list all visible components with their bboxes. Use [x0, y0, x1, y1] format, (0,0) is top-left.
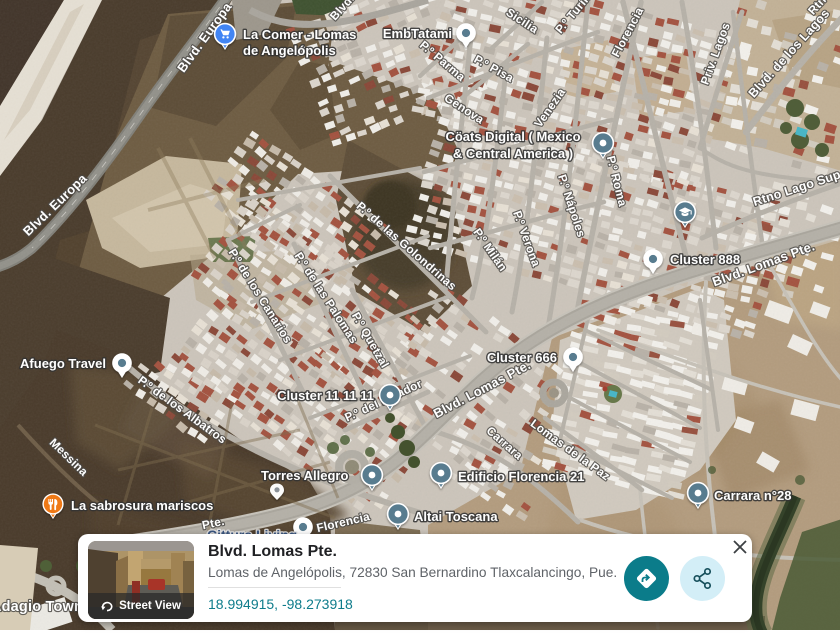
svg-text:Altai Toscana: Altai Toscana [414, 509, 498, 524]
svg-text:Carrara n°28: Carrara n°28 [714, 488, 791, 503]
svg-text:Cluster 11 11 11: Cluster 11 11 11 [277, 388, 374, 403]
svg-text:Cluster 888: Cluster 888 [670, 252, 740, 267]
svg-text:EmbTatami: EmbTatami [383, 26, 452, 41]
svg-text:Torres Allegro: Torres Allegro [261, 468, 348, 483]
svg-text:& Central America ): & Central America ) [453, 146, 573, 161]
svg-text:de Angelópolis: de Angelópolis [243, 43, 336, 58]
svg-text:La Comer - Lomas: La Comer - Lomas [243, 27, 356, 42]
svg-text:Adagio Town: Adagio Town [0, 599, 83, 615]
svg-text:Cöats Digital ( Mexico: Cöats Digital ( Mexico [445, 129, 580, 144]
svg-text:La sabrosura mariscos: La sabrosura mariscos [71, 498, 213, 513]
svg-text:Edificio Florencia 21: Edificio Florencia 21 [458, 469, 584, 484]
svg-text:Cluster 666: Cluster 666 [487, 350, 557, 365]
svg-text:Afuego Travel: Afuego Travel [20, 356, 106, 371]
